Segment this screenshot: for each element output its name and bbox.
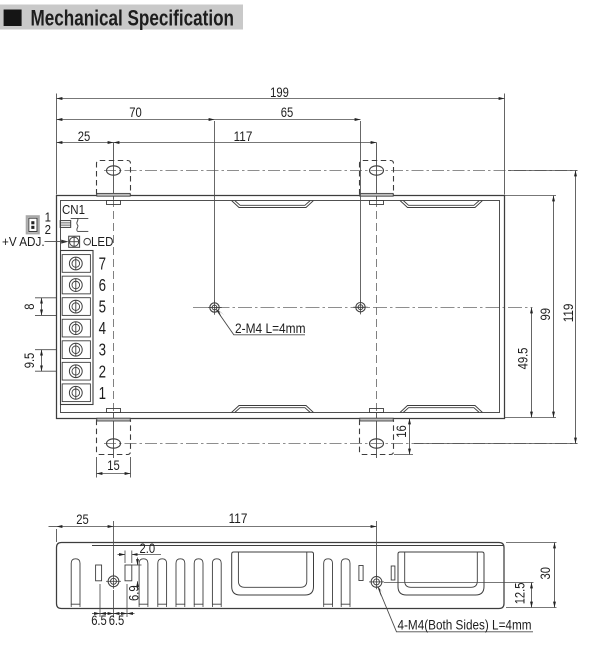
svg-text:16: 16 xyxy=(393,425,409,438)
svg-text:CN1: CN1 xyxy=(62,202,85,217)
svg-text:199: 199 xyxy=(270,84,289,100)
svg-text:9.5: 9.5 xyxy=(21,353,37,369)
svg-text:30: 30 xyxy=(537,567,553,580)
svg-text:Mechanical Specification: Mechanical Specification xyxy=(31,5,235,30)
svg-text:2: 2 xyxy=(45,222,51,237)
svg-text:2: 2 xyxy=(99,361,106,381)
svg-text:3: 3 xyxy=(99,340,106,360)
svg-text:+V ADJ.: +V ADJ. xyxy=(2,234,45,249)
svg-text:12.5: 12.5 xyxy=(512,582,528,604)
svg-text:4: 4 xyxy=(99,318,107,338)
svg-text:15: 15 xyxy=(107,457,120,473)
svg-text:6.5: 6.5 xyxy=(91,612,107,628)
svg-text:25: 25 xyxy=(78,128,91,144)
svg-text:70: 70 xyxy=(129,104,142,120)
svg-text:4-M4(Both Sides) L=4mm: 4-M4(Both Sides) L=4mm xyxy=(398,618,532,633)
svg-text:1: 1 xyxy=(99,383,106,403)
svg-text:LED: LED xyxy=(91,234,113,249)
svg-text:119: 119 xyxy=(560,303,576,322)
svg-text:25: 25 xyxy=(76,511,89,527)
svg-text:6: 6 xyxy=(99,275,106,295)
svg-text:99: 99 xyxy=(537,308,553,321)
svg-text:2-M4 L=4mm: 2-M4 L=4mm xyxy=(235,321,306,336)
svg-text:7: 7 xyxy=(99,254,106,274)
svg-text:5: 5 xyxy=(99,297,106,317)
svg-text:6.9: 6.9 xyxy=(126,585,142,601)
svg-text:49.5: 49.5 xyxy=(515,347,531,369)
svg-text:65: 65 xyxy=(281,104,294,120)
svg-text:2.0: 2.0 xyxy=(140,540,156,556)
svg-text:6.5: 6.5 xyxy=(109,612,125,628)
svg-text:117: 117 xyxy=(234,128,253,144)
svg-text:8: 8 xyxy=(21,303,37,309)
svg-text:117: 117 xyxy=(229,510,248,526)
